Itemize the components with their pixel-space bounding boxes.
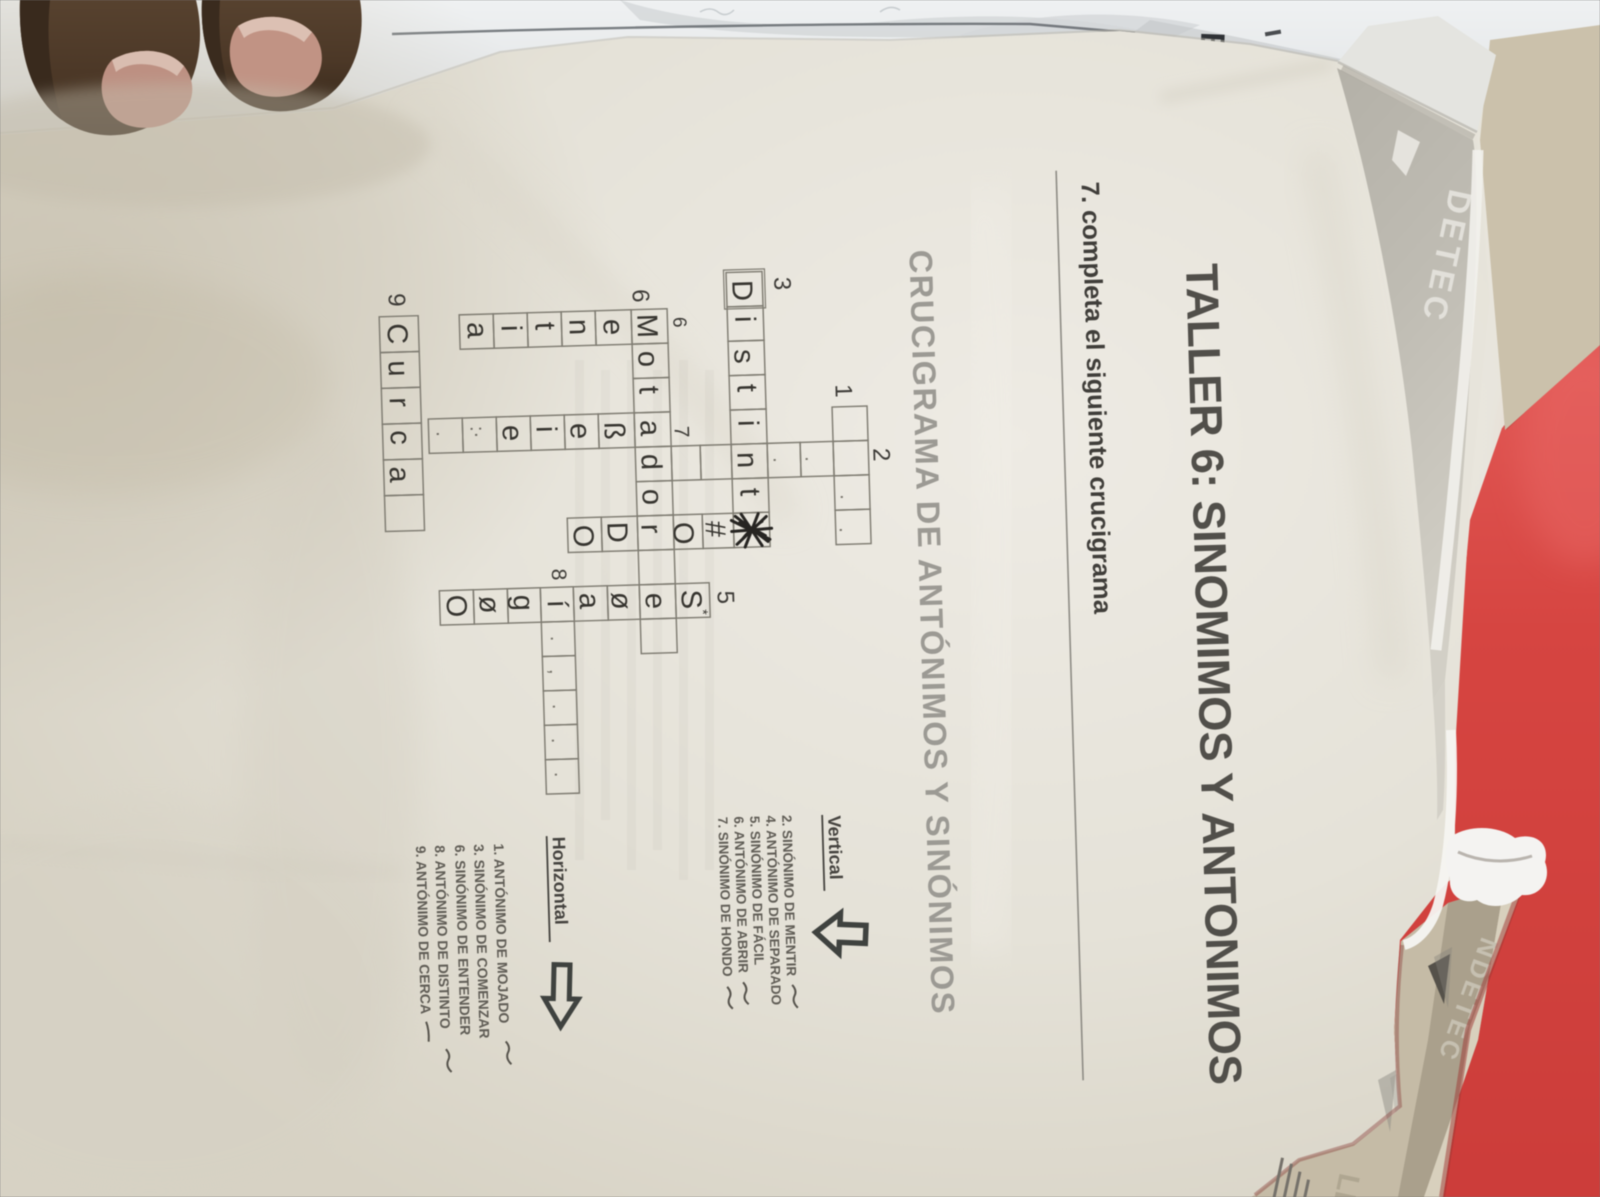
svg-text:5: 5: [711, 590, 738, 604]
svg-text:t: t: [730, 384, 762, 393]
svg-text:e: e: [495, 424, 527, 441]
svg-text:e: e: [638, 592, 670, 609]
svg-text:a: a: [633, 419, 665, 437]
svg-text:u: u: [381, 360, 413, 377]
svg-text::·: :·: [465, 426, 487, 439]
svg-text:i: i: [529, 425, 561, 432]
svg-text:o: o: [635, 488, 667, 505]
svg-text:o: o: [631, 350, 663, 367]
svg-text:i: i: [494, 324, 526, 331]
svg-text:a: a: [572, 592, 604, 610]
svg-text:t: t: [632, 385, 664, 394]
svg-text:s: s: [727, 349, 759, 364]
svg-text:.: .: [548, 703, 570, 709]
svg-text:,: ,: [545, 668, 567, 674]
svg-text:M: M: [630, 313, 663, 338]
svg-text:D: D: [725, 280, 758, 302]
svg-text:c: c: [384, 430, 416, 445]
svg-text:C: C: [380, 323, 413, 345]
svg-text:a: a: [383, 466, 415, 484]
svg-text:i: i: [731, 419, 763, 426]
svg-text:g: g: [506, 594, 538, 611]
svg-text:.: .: [800, 456, 822, 462]
svg-text:e: e: [596, 318, 628, 335]
svg-text:.: .: [550, 771, 572, 777]
svg-text:1: 1: [829, 384, 856, 398]
svg-text:6: 6: [668, 317, 689, 328]
svg-text:O: O: [566, 524, 599, 548]
svg-text:.: .: [835, 527, 857, 533]
svg-text:D: D: [600, 521, 633, 543]
svg-text:.: .: [432, 431, 454, 437]
svg-text:7: 7: [670, 426, 693, 438]
svg-text:t: t: [528, 321, 560, 330]
svg-text:n: n: [562, 318, 594, 335]
svg-text:.: .: [836, 494, 858, 500]
svg-text:i: i: [728, 316, 760, 323]
svg-text:í: í: [541, 599, 573, 608]
svg-text:O: O: [666, 521, 699, 545]
svg-text:S: S: [674, 589, 707, 609]
svg-text:d: d: [634, 453, 666, 470]
svg-text:O: O: [439, 594, 472, 618]
svg-text:r: r: [634, 523, 666, 534]
svg-text:Vertical: Vertical: [824, 815, 846, 880]
svg-text:8: 8: [547, 568, 570, 580]
svg-text:Horizontal: Horizontal: [549, 836, 572, 925]
svg-text:9: 9: [382, 293, 409, 307]
svg-text:6: 6: [626, 289, 653, 303]
svg-text:a: a: [460, 321, 492, 339]
svg-text:n: n: [730, 452, 762, 469]
svg-text:#: #: [698, 521, 730, 538]
svg-text:ø: ø: [472, 595, 505, 614]
svg-text:ø: ø: [604, 591, 637, 610]
svg-text:e: e: [563, 422, 595, 439]
svg-text:.: .: [769, 457, 791, 463]
svg-text:.: .: [547, 737, 569, 743]
svg-text:r: r: [383, 397, 415, 408]
svg-text:.: .: [546, 635, 568, 641]
svg-text:ß: ß: [597, 421, 630, 440]
svg-text:*: *: [695, 609, 711, 615]
svg-text:t: t: [733, 487, 765, 496]
svg-text:3: 3: [768, 276, 795, 290]
svg-text:2: 2: [867, 448, 894, 462]
